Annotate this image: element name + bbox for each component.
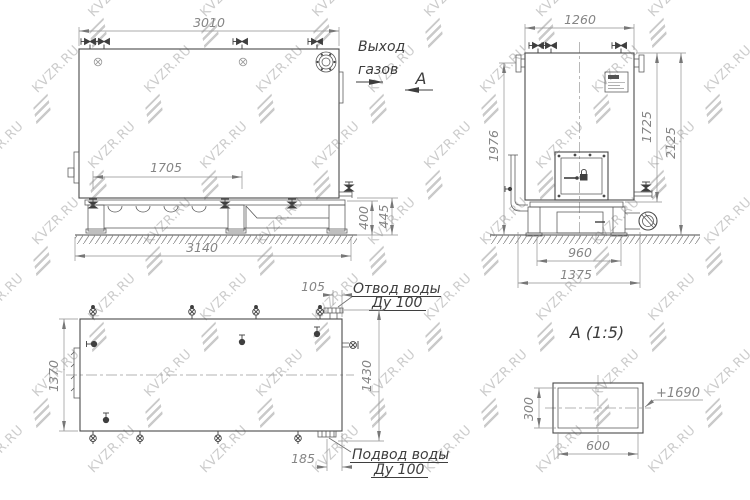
side-inner-width-dim: 1705 <box>150 160 182 175</box>
view-a-marker: А <box>415 69 427 88</box>
detail-elevation-dim: +1690 <box>656 386 700 401</box>
side-view: 3010 1705 3140 400 445 Выход газов А <box>68 15 433 261</box>
front-top-width-dim: 1260 <box>564 12 596 27</box>
valve-icon <box>81 38 96 49</box>
valve-icon <box>529 42 544 53</box>
valve-icon <box>317 306 324 320</box>
gas-outlet-flange <box>316 52 336 72</box>
valve-icon <box>189 306 196 320</box>
valve-icon <box>90 306 97 320</box>
valve-icon <box>308 38 323 49</box>
water-outlet-label-line2: Ду 100 <box>371 295 422 311</box>
front-left-height-dim: 1976 <box>486 130 501 162</box>
valve-icon <box>103 413 109 423</box>
gas-outlet-label-line1: Выход <box>358 39 405 55</box>
valve-icon <box>95 38 110 49</box>
burner-flange <box>625 212 657 230</box>
plan-left-height-dim: 1370 <box>46 360 61 392</box>
plan-top-offset-dim: 105 <box>301 279 325 294</box>
valve-icon <box>215 431 222 444</box>
valve-icon <box>87 341 97 347</box>
valve-icon <box>542 42 557 53</box>
plan-right-height-dim: 1430 <box>359 360 374 392</box>
base-frame <box>85 200 347 233</box>
boiler-technical-drawing: KVZR.RUKVZR.RUKVZR.RUKVZR.RUKVZR.RUKVZR.… <box>0 0 750 500</box>
ash-box <box>526 202 627 236</box>
valve-icon <box>314 327 320 337</box>
front-view: 1260 1976 1725 2125 960 1375 <box>486 12 700 288</box>
valve-icon <box>253 306 260 320</box>
water-inlet-flange <box>318 431 336 437</box>
plan-bottom-offset-dim: 185 <box>291 451 315 466</box>
lifting-lug-icon <box>94 58 102 66</box>
front-right-inner-height-dim: 1725 <box>639 111 654 143</box>
side-base-width-dim: 3140 <box>186 240 218 255</box>
side-outlet-height-dim: 445 <box>376 205 391 229</box>
detail-height-dim: 300 <box>521 397 536 421</box>
valve-icon <box>233 38 248 49</box>
side-top-width-dim: 3010 <box>193 15 225 30</box>
lifting-lug-icon <box>239 58 247 66</box>
valve-icon <box>239 335 245 345</box>
detail-view-a: А (1:5) 300 600 +1690 <box>521 323 703 459</box>
side-base-height-dim: 400 <box>356 206 371 230</box>
front-base-outer-width-dim: 1375 <box>560 267 592 282</box>
stub-valve-icon <box>642 182 650 191</box>
plan-view: Отвод воды Ду 100 105 Подвод воды Ду 100 <box>46 279 449 478</box>
front-right-outer-height-dim: 2125 <box>663 127 678 159</box>
valve-icon <box>90 431 97 444</box>
fire-door <box>555 152 608 200</box>
valve-icon <box>612 42 627 53</box>
water-inlet-label-line1: Подвод воды <box>352 447 449 463</box>
detail-view-title: А (1:5) <box>569 323 624 342</box>
water-inlet-label-line2: Ду 100 <box>373 462 424 478</box>
nameplate <box>605 72 628 92</box>
ground-hatch <box>490 235 700 244</box>
valve-icon <box>137 431 144 444</box>
detail-width-dim: 600 <box>586 438 610 453</box>
water-outlet-flange <box>324 308 343 319</box>
stub-valve-icon <box>345 182 353 191</box>
drawing-canvas: 3010 1705 3140 400 445 Выход газов А <box>0 0 750 500</box>
valve-icon <box>295 431 302 444</box>
front-base-inner-width-dim: 960 <box>568 245 592 260</box>
gas-outlet-label-line2: газов <box>358 62 398 78</box>
